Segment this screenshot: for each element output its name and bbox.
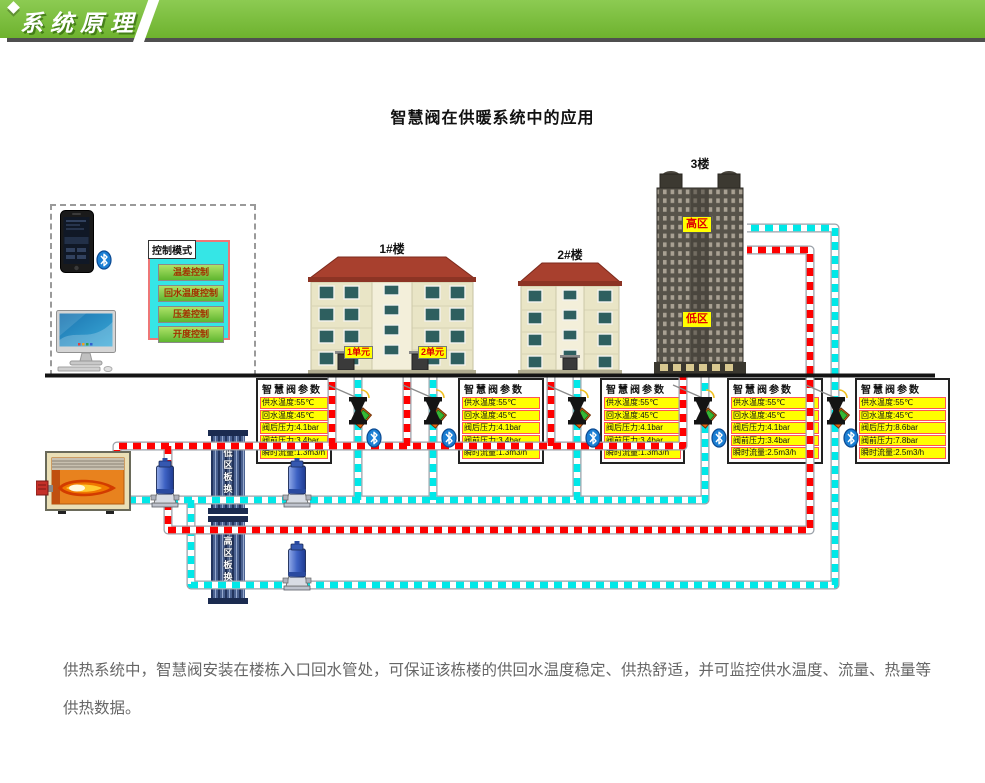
building-2-label: 2#楼 [518,246,622,263]
building-3 [654,170,746,374]
pump [283,458,311,507]
valve-params-box-1: 智慧阀参数 供水温度:55℃ 回水温度:45℃ 阀后压力:4.1bar 阀前压力… [256,378,332,464]
bluetooth-icon [367,429,381,447]
valve-params-title: 智慧阀参数 [606,381,681,396]
low-zone-heat-exchanger: 低区板换 [211,432,245,512]
control-btn-temp-diff: 温差控制 [158,264,224,281]
valve-params-box-4: 智慧阀参数 供水温度:55℃ 回水温度:45℃ 阀后压力:4.1bar 阀前压力… [727,378,823,464]
page-title: 智慧阀在供暖系统中的应用 [0,104,985,128]
supply-temp-row: 供水温度:55℃ [731,397,819,409]
flow-row: 瞬时流量:2.5m3/h [859,447,946,459]
unit-1-label: 1单元 [344,346,373,359]
supply-temp-row: 供水温度:55℃ [859,397,946,409]
high-zone-hx-label: 高区板换 [222,536,235,584]
boiler [36,450,136,516]
header-banner-shadow [7,38,985,42]
building-2 [518,260,622,374]
return-temp-row: 回水温度:45℃ [859,410,946,422]
page: 系统原理 智慧阀在供暖系统中的应用 [0,0,985,783]
smart-valve [547,385,590,428]
building-1 [308,254,476,374]
flow-row: 瞬时流量:1.3m3/h [260,447,328,459]
pump [151,458,179,507]
bluetooth-icon [442,429,456,447]
supply-temp-row: 供水温度:55℃ [462,397,540,409]
post-valve-pressure-row: 阀后压力:4.1bar [260,422,328,434]
post-valve-pressure-row: 阀后压力:4.1bar [604,422,681,434]
return-temp-row: 回水温度:45℃ [260,410,328,422]
valve-params-title: 智慧阀参数 [861,381,946,396]
control-btn-return-temp: 回水温度控制 [158,285,224,302]
return-temp-row: 回水温度:45℃ [462,410,540,422]
pre-valve-pressure-row: 阀前压力:3.4bar [462,435,540,447]
pre-valve-pressure-row: 阀前压力:7.8bar [859,435,946,447]
valve-params-title: 智慧阀参数 [262,381,328,396]
valve-params-box-3: 智慧阀参数 供水温度:55℃ 回水温度:45℃ 阀后压力:4.1bar 阀前压力… [600,378,685,464]
pre-valve-pressure-row: 阀前压力:3.4bar [731,435,819,447]
bluetooth-icon [712,429,726,447]
valve-params-box-5: 智慧阀参数 供水温度:55℃ 回水温度:45℃ 阀后压力:8.6bar 阀前压力… [855,378,950,464]
high-zone-label: 高区 [682,216,712,233]
unit-2-label: 2单元 [418,346,447,359]
control-btn-pressure-diff: 压差控制 [158,306,224,323]
supply-temp-row: 供水温度:55℃ [260,397,328,409]
smart-valve [403,385,446,428]
smart-valve [328,385,371,428]
low-zone-hx-label: 低区板换 [222,448,235,496]
low-zone-label: 低区 [682,311,712,328]
pre-valve-pressure-row: 阀前压力:3.4bar [260,435,328,447]
flow-row: 瞬时流量:2.5m3/h [731,447,819,459]
building-3-label: 3楼 [654,155,746,172]
post-valve-pressure-row: 阀后压力:8.6bar [859,422,946,434]
control-mode-panel: 控制模式 温差控制 回水温度控制 压差控制 开度控制 [148,240,230,340]
post-valve-pressure-row: 阀后压力:4.1bar [462,422,540,434]
supply-temp-row: 供水温度:55℃ [604,397,681,409]
valve-params-box-2: 智慧阀参数 供水温度:55℃ 回水温度:45℃ 阀后压力:4.1bar 阀前压力… [458,378,544,464]
smartphone [60,210,94,274]
pump [283,541,311,590]
caption-text: 供热系统中，智慧阀安装在楼栋入口回水管处，可保证该栋楼的供回水温度稳定、供热舒适… [63,652,941,728]
building-1-label: 1#楼 [308,240,476,257]
pre-valve-pressure-row: 阀前压力:3.4bar [604,435,681,447]
flow-row: 瞬时流量:1.3m3/h [462,447,540,459]
flow-row: 瞬时流量:1.3m3/h [604,447,681,459]
high-zone-heat-exchanger: 高区板换 [211,518,245,602]
computer-monitor [56,310,118,372]
control-mode-title: 控制模式 [148,240,196,259]
banner-title: 系统原理 [20,4,140,38]
control-btn-opening: 开度控制 [158,326,224,343]
return-temp-row: 回水温度:45℃ [604,410,681,422]
valve-params-title: 智慧阀参数 [464,381,540,396]
bluetooth-icon [586,429,600,447]
valve-params-title: 智慧阀参数 [733,381,819,396]
return-temp-row: 回水温度:45℃ [731,410,819,422]
post-valve-pressure-row: 阀后压力:4.1bar [731,422,819,434]
